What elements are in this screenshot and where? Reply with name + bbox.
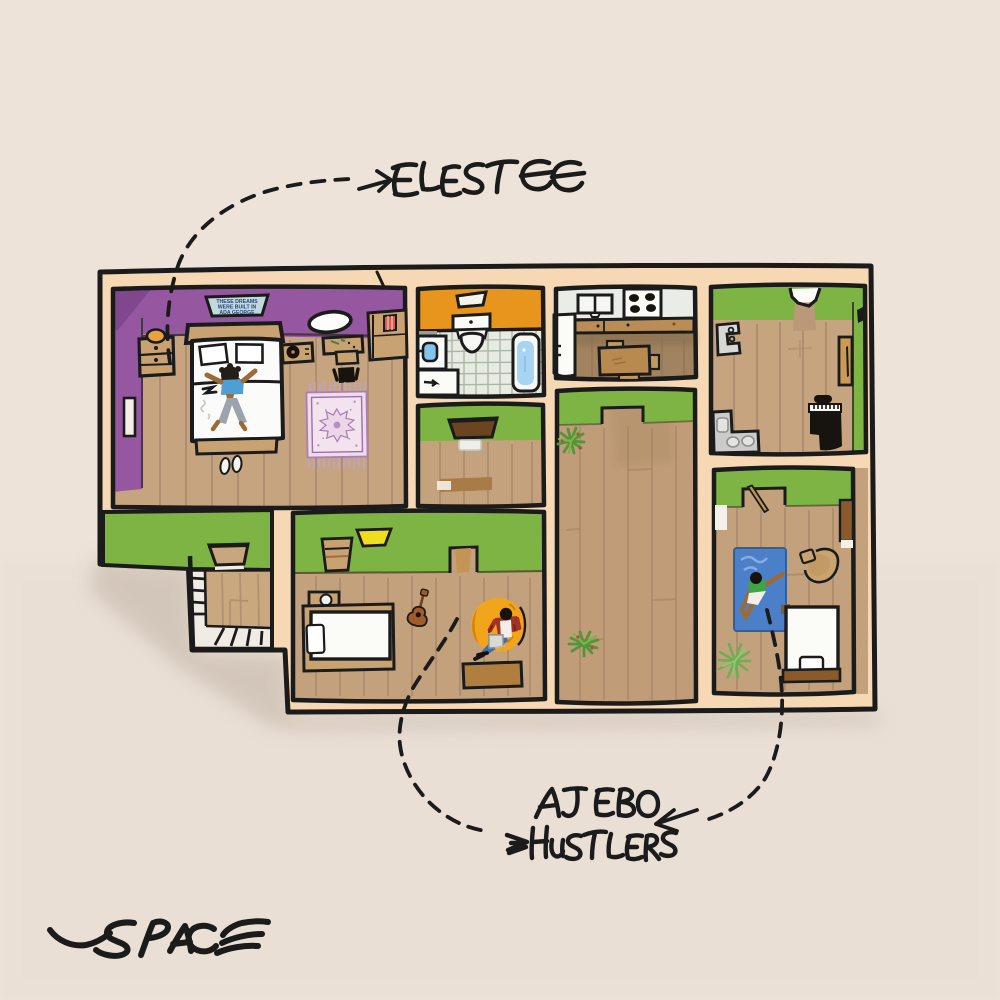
- svg-text:ADA GEORGE: ADA GEORGE: [219, 310, 255, 316]
